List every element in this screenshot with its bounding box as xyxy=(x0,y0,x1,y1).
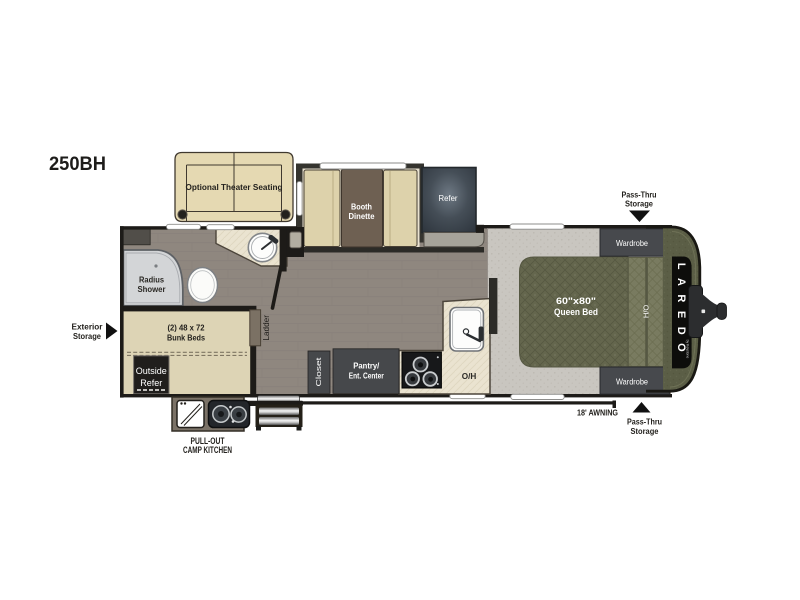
svg-text:Pantry/: Pantry/ xyxy=(353,362,380,371)
svg-text:Booth: Booth xyxy=(351,203,372,212)
svg-text:18' AWNING: 18' AWNING xyxy=(577,408,618,418)
svg-text:H/O: H/O xyxy=(641,305,650,319)
svg-text:Outside: Outside xyxy=(136,365,167,376)
svg-text:Bunk Beds: Bunk Beds xyxy=(167,333,205,343)
svg-text:Wardrobe: Wardrobe xyxy=(616,377,648,387)
svg-text:Storage: Storage xyxy=(73,331,101,341)
svg-text:Closet: Closet xyxy=(314,356,323,386)
svg-text:Pass-Thru: Pass-Thru xyxy=(627,417,662,427)
svg-text:Refer: Refer xyxy=(140,377,162,388)
svg-text:Wardrobe: Wardrobe xyxy=(616,238,648,248)
svg-text:LAREDO: LAREDO xyxy=(675,263,687,360)
svg-text:Ladder: Ladder xyxy=(262,315,271,341)
svg-text:Ent. Center: Ent. Center xyxy=(349,371,385,380)
svg-text:(2) 48 x 72: (2) 48 x 72 xyxy=(168,323,205,333)
svg-text:Optional Theater Seating: Optional Theater Seating xyxy=(186,182,283,192)
svg-text:60"x80": 60"x80" xyxy=(556,296,596,306)
svg-text:by Keystone: by Keystone xyxy=(686,340,690,359)
svg-text:CAMP KITCHEN: CAMP KITCHEN xyxy=(183,445,232,455)
svg-text:250BH: 250BH xyxy=(49,153,106,175)
svg-text:Dinette: Dinette xyxy=(349,212,376,221)
svg-text:Storage: Storage xyxy=(631,426,659,436)
svg-text:Queen Bed: Queen Bed xyxy=(554,307,598,317)
svg-text:Refer: Refer xyxy=(439,194,458,203)
svg-text:Exterior: Exterior xyxy=(72,322,104,332)
svg-text:O/H: O/H xyxy=(462,372,477,381)
svg-text:Radius: Radius xyxy=(139,275,164,285)
svg-text:Storage: Storage xyxy=(625,199,653,209)
svg-text:Shower: Shower xyxy=(138,284,167,294)
